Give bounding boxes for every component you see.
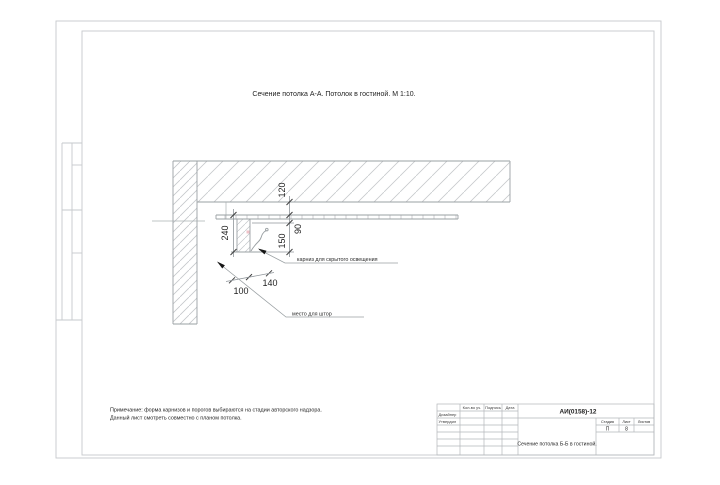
lighting-accent-dot [247, 231, 250, 234]
margin-column [56, 143, 82, 320]
stamp-header-count: Кол-во уч. [463, 405, 482, 410]
callouts: карниз для скрытого освещения место для … [217, 249, 398, 318]
notes-block: Примечание: форма карнизов и порогов выб… [110, 408, 322, 422]
stamp-drawing-title: Сечение потолка Б-Б в гостиной. [517, 441, 596, 448]
dim-90: 90 [293, 224, 303, 234]
dim-100: 100 [233, 286, 248, 296]
stamp-header-signature: Подпись [485, 405, 501, 410]
wall-section-hatch [174, 162, 198, 324]
drawing-sheet: Сечение потолка А-А. Потолок в гостиной.… [0, 0, 720, 480]
note-line-1: Примечание: форма карнизов и порогов выб… [110, 408, 322, 414]
suspended-ceiling-band [216, 215, 458, 219]
note-line-2: Данный лист смотреть совместно с планом … [110, 415, 242, 422]
slab-section-hatch [198, 162, 510, 203]
leader-arrow-icon [258, 249, 267, 255]
sheet-frame [56, 21, 661, 458]
sheet-outer-border [56, 21, 661, 458]
drawing-view-title: Сечение потолка А-А. Потолок в гостиной.… [252, 90, 415, 98]
cornice-callout-label: карниз для скрытого освещения [297, 257, 378, 263]
dim-240: 240 [220, 225, 230, 240]
stamp-role-designer: Дизайнер [439, 412, 458, 417]
dim-140: 140 [262, 278, 277, 288]
title-block: Кол-во уч. Подпись Дата Дизайнер Утверди… [437, 404, 654, 455]
dim-120: 120 [277, 182, 287, 197]
stamp-role-approved: Утвердил [439, 419, 457, 424]
stamp-header-date: Дата [506, 405, 516, 410]
section-view [152, 161, 510, 324]
curtains-callout-label: место для штор [292, 312, 332, 318]
dim-150: 150 [277, 233, 287, 248]
stamp-doc-number: АИ(0158)-12 [560, 409, 597, 416]
stamp-value-sheet: 8 [625, 427, 628, 433]
stamp-header-stage: Стадия [601, 420, 614, 424]
stamp-value-stage: П [606, 427, 610, 433]
stamp-header-sheet: Лист [622, 420, 631, 424]
cove-box-hatch [238, 219, 251, 252]
stamp-header-sheets: Листов [638, 420, 650, 424]
cornice-scroll-tip [266, 228, 269, 231]
